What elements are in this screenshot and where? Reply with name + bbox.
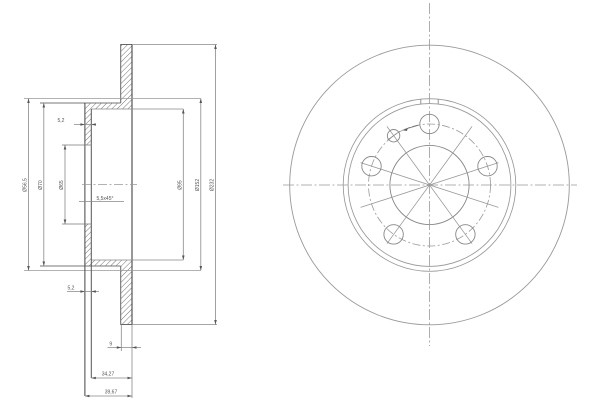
svg-text:5,2: 5,2 [68,286,75,292]
svg-text:Ø70: Ø70 [38,180,44,190]
svg-text:Ø65: Ø65 [59,180,65,190]
svg-text:Ø152: Ø152 [195,179,201,191]
svg-text:9: 9 [109,341,112,347]
svg-text:5,5x45°: 5,5x45° [96,196,113,202]
svg-text:39,67: 39,67 [105,390,118,396]
svg-text:5,2: 5,2 [58,118,65,124]
svg-text:34,27: 34,27 [102,372,115,378]
svg-text:Ø232: Ø232 [210,179,216,191]
svg-text:Ø95: Ø95 [177,180,183,190]
svg-text:Ø56,5: Ø56,5 [23,178,29,192]
